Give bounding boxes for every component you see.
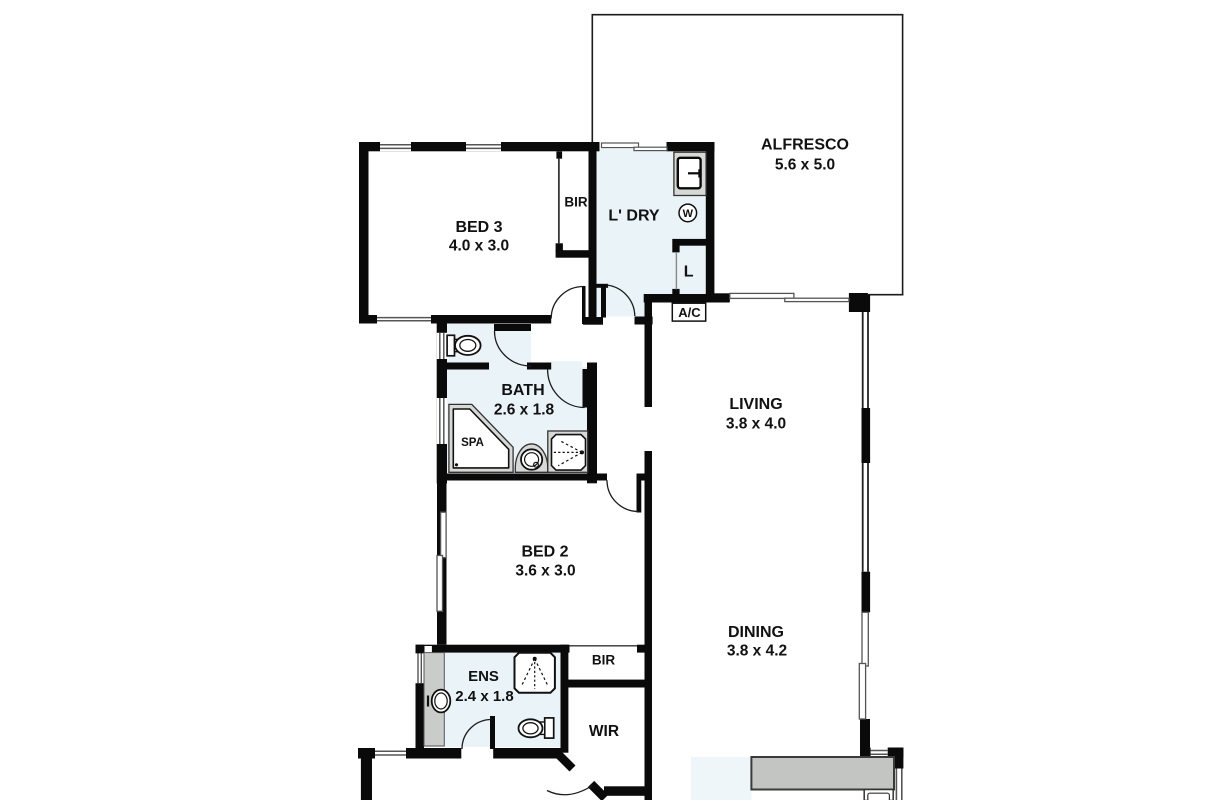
svg-text:3.8 x 4.0: 3.8 x 4.0 — [726, 416, 786, 433]
svg-text:BED 3: BED 3 — [455, 219, 502, 236]
svg-text:LIVING: LIVING — [729, 396, 782, 413]
svg-text:2.4 x 1.8: 2.4 x 1.8 — [455, 688, 513, 705]
svg-text:W: W — [683, 208, 694, 220]
svg-text:A/C: A/C — [678, 305, 701, 320]
svg-text:2.6 x 1.8: 2.6 x 1.8 — [494, 402, 555, 419]
svg-text:BED 2: BED 2 — [521, 544, 568, 561]
svg-text:L: L — [684, 263, 694, 280]
svg-text:ALFRESCO: ALFRESCO — [761, 137, 849, 154]
svg-text:SPA: SPA — [461, 437, 484, 449]
svg-text:WIR: WIR — [589, 723, 619, 740]
svg-text:L' DRY: L' DRY — [608, 208, 660, 225]
svg-text:5.6 x 5.0: 5.6 x 5.0 — [775, 157, 835, 174]
svg-text:3.6 x 3.0: 3.6 x 3.0 — [515, 563, 575, 580]
svg-text:ENS: ENS — [468, 668, 499, 685]
svg-text:BATH: BATH — [501, 382, 544, 399]
svg-text:4.0 x 3.0: 4.0 x 3.0 — [449, 238, 509, 255]
svg-text:BIR: BIR — [592, 653, 616, 668]
svg-text:3.8 x 4.2: 3.8 x 4.2 — [727, 643, 787, 660]
svg-text:BIR: BIR — [564, 195, 588, 210]
svg-text:DINING: DINING — [728, 624, 784, 641]
